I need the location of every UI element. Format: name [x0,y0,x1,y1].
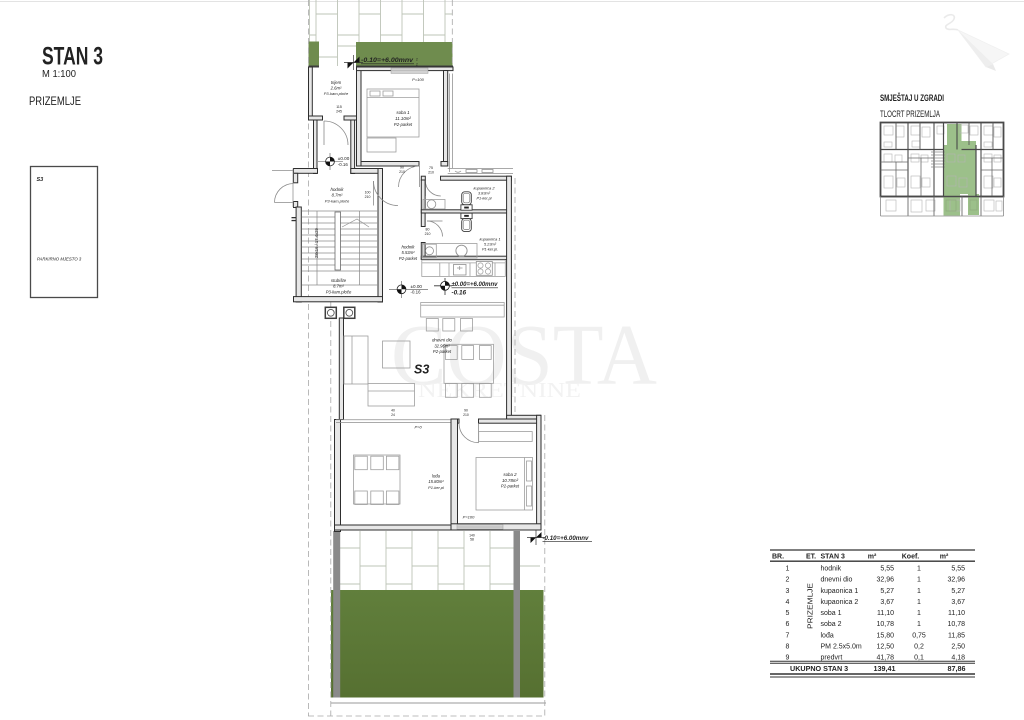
svg-text:hodnik: hodnik [821,566,842,573]
svg-text:210: 210 [365,195,371,199]
svg-text:245: 245 [336,110,342,114]
svg-text:predvrt: predvrt [821,655,843,662]
svg-text:0,2: 0,2 [914,643,924,650]
svg-text:2: 2 [786,577,790,584]
svg-text:P1-ker.pl: P1-ker.pl [476,197,491,201]
svg-text:11,10: 11,10 [877,610,894,617]
svg-text:10.78m²: 10.78m² [502,478,519,483]
svg-text:dnevni dio: dnevni dio [821,577,853,584]
svg-text:P2-parket: P2-parket [394,122,413,127]
svg-text:24: 24 [391,413,395,417]
svg-text:P3-kam.ploče: P3-kam.ploče [324,91,349,96]
svg-text:S3: S3 [37,177,44,183]
svg-text:28x16 / 17.4x29: 28x16 / 17.4x29 [314,228,319,258]
svg-text:10,78: 10,78 [876,621,894,628]
svg-text:75: 75 [429,166,433,170]
svg-text:±0.00=+6.00mnv: ±0.00=+6.00mnv [452,281,498,288]
svg-text:15,80: 15,80 [876,632,894,639]
svg-text:P=100: P=100 [412,77,424,82]
svg-text:±0.00: ±0.00 [338,156,350,161]
svg-text:210: 210 [428,171,434,175]
svg-text:4: 4 [786,599,790,606]
svg-text:32.96m²: 32.96m² [434,343,450,348]
svg-text:P2-parket: P2-parket [501,484,520,489]
svg-text:80: 80 [426,228,430,232]
svg-text:3: 3 [786,588,790,595]
svg-text:P=100: P=100 [463,515,475,520]
svg-text:2,50: 2,50 [951,643,965,650]
svg-text:41,78: 41,78 [876,655,894,662]
svg-text:1: 1 [917,577,921,584]
svg-text:-0.16: -0.16 [452,290,467,297]
svg-text:3,67: 3,67 [880,599,894,606]
svg-text:210: 210 [399,170,405,174]
svg-text:9: 9 [786,655,790,662]
svg-text:STAN 3: STAN 3 [42,43,103,71]
svg-text:210: 210 [425,232,431,236]
svg-text:PARKIRNO MJESTO 3: PARKIRNO MJESTO 3 [37,257,82,262]
svg-text:1: 1 [917,610,921,617]
svg-text:5,55: 5,55 [951,566,965,573]
svg-text:8.7m²: 8.7m² [332,193,343,198]
svg-text:139,41: 139,41 [874,664,896,673]
svg-text:STAN 3: STAN 3 [821,554,845,561]
svg-text:58: 58 [470,538,474,542]
svg-text:5.53m²: 5.53m² [401,250,415,255]
svg-text:kupaonica 1: kupaonica 1 [821,588,859,595]
svg-text:P3-kam.ploče: P3-kam.ploče [326,290,352,295]
svg-text:15.80m²: 15.80m² [428,479,444,484]
svg-text:0,75: 0,75 [912,632,926,639]
svg-text:5,27: 5,27 [951,588,965,595]
svg-text:5,27: 5,27 [880,588,894,595]
svg-text:±0.00: ±0.00 [411,284,423,289]
svg-text:-0.10=+6.00mnv: -0.10=+6.00mnv [543,535,590,542]
svg-text:soba 1: soba 1 [396,110,410,115]
svg-text:ET.: ET. [806,554,816,561]
svg-text:m²: m² [940,554,949,561]
svg-text:P1-ker.pl: P1-ker.pl [428,485,444,490]
svg-text:dnevni dio: dnevni dio [432,338,453,343]
svg-text:4,18: 4,18 [951,655,965,662]
svg-text:kupaonica 2: kupaonica 2 [821,599,859,606]
svg-text:NEKRETNINE: NEKRETNINE [418,378,581,402]
svg-text:S3: S3 [414,363,429,377]
svg-text:115: 115 [336,105,342,109]
svg-text:100: 100 [365,191,371,195]
svg-text:32,96: 32,96 [947,577,965,584]
svg-text:hodnik: hodnik [331,187,345,192]
svg-text:SMJEŠTAJ U ZGRADI: SMJEŠTAJ U ZGRADI [880,92,944,103]
svg-text:11,85: 11,85 [948,632,965,639]
svg-text:2: 2 [416,58,418,62]
svg-text:1: 1 [917,588,921,595]
svg-text:7: 7 [786,632,790,639]
svg-text:P2-parket: P2-parket [433,349,452,354]
svg-text:32,96: 32,96 [876,577,894,584]
svg-text:PM 2.5x5.0m: PM 2.5x5.0m [821,643,862,650]
svg-text:11,10: 11,10 [948,610,965,617]
svg-text:1: 1 [917,566,921,573]
svg-text:stubište: stubište [331,278,347,283]
svg-text:BR.: BR. [772,554,784,561]
svg-text:3.83m²: 3.83m² [478,191,491,196]
svg-text:1: 1 [917,599,921,606]
svg-text:-0.10=+6.00mnv: -0.10=+6.00mnv [361,57,413,64]
svg-text:lođa: lođa [432,474,441,479]
svg-text:P=0: P=0 [415,425,423,430]
svg-text:0,1: 0,1 [914,655,924,662]
svg-text:10,78: 10,78 [947,621,965,628]
svg-text:soba 2: soba 2 [821,621,842,628]
svg-text:PRIZEMLJE: PRIZEMLJE [29,96,81,108]
svg-text:soba 1: soba 1 [821,610,842,617]
svg-text:TLOCRT PRIZEMLJA: TLOCRT PRIZEMLJA [880,109,940,119]
svg-text:-0.16: -0.16 [411,290,422,295]
svg-text:P2-parket: P2-parket [399,256,418,261]
svg-text:soba 2: soba 2 [503,472,517,477]
svg-text:87,86: 87,86 [948,664,966,673]
svg-text:trijem: trijem [331,80,342,85]
svg-text:6: 6 [786,621,790,628]
svg-text:M 1:100: M 1:100 [42,69,76,80]
svg-text:m²: m² [868,554,877,561]
svg-text:Koef.: Koef. [902,554,920,561]
svg-text:5: 5 [786,610,790,617]
svg-text:P1-ker.pl.: P1-ker.pl. [482,248,498,252]
svg-text:-0.16: -0.16 [338,162,349,167]
svg-text:3,67: 3,67 [951,599,965,606]
svg-text:2.6m²: 2.6m² [330,85,342,90]
svg-text:P3-kam.ploče: P3-kam.ploče [325,198,350,203]
svg-text:UKUPNO STAN 3: UKUPNO STAN 3 [790,664,848,673]
svg-text:210: 210 [463,413,469,417]
svg-text:lođa: lođa [821,632,834,639]
svg-text:5.23m²: 5.23m² [484,242,497,247]
svg-text:1: 1 [786,566,790,573]
svg-text:hodnik: hodnik [402,245,416,250]
svg-text:12,50: 12,50 [876,643,894,650]
svg-text:90: 90 [400,166,404,170]
svg-text:8.7m²: 8.7m² [333,284,344,289]
svg-text:8: 8 [786,643,790,650]
svg-text:5,55: 5,55 [880,566,894,573]
svg-text:1: 1 [917,621,921,628]
svg-text:2: 2 [416,63,418,67]
svg-text:11.10m²: 11.10m² [395,116,411,121]
svg-text:PRIZEMLJE: PRIZEMLJE [808,583,815,629]
